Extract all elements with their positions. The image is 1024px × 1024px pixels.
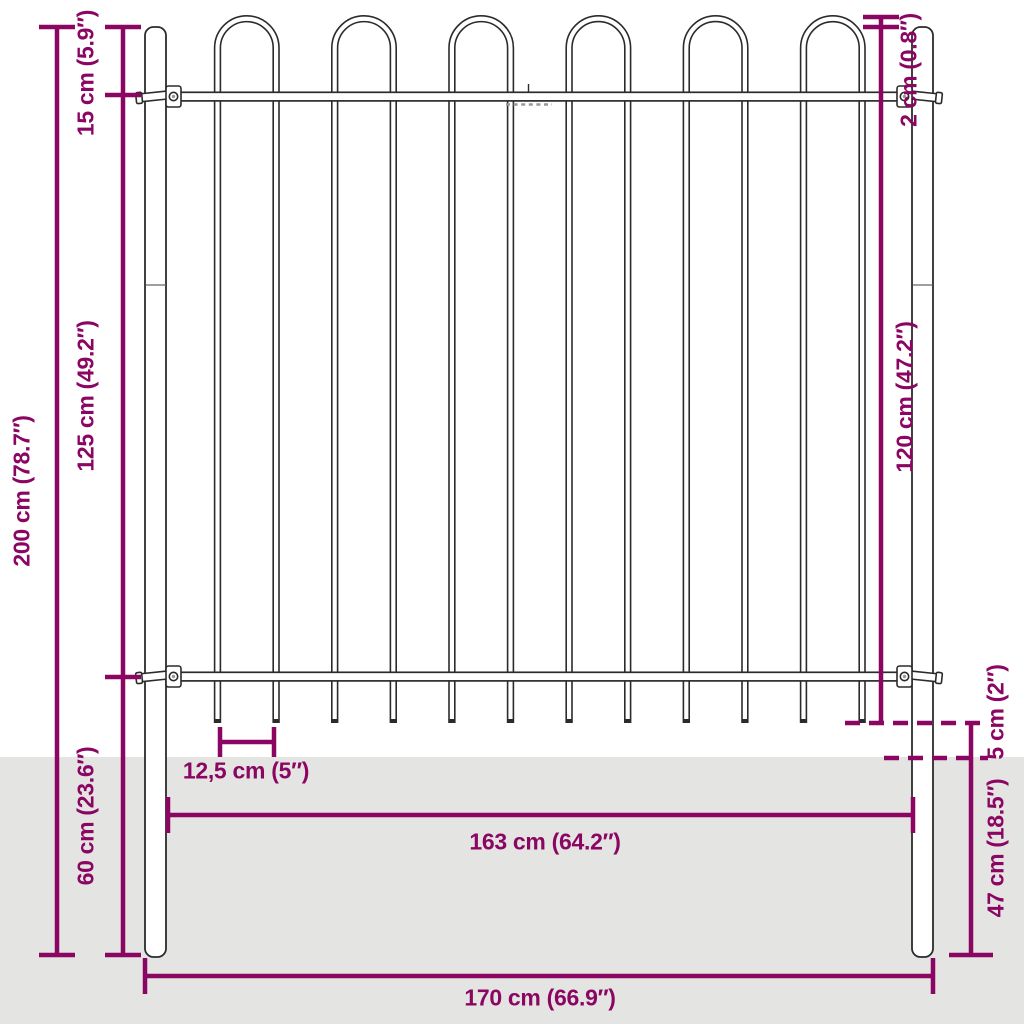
dim-post-underground-label: 47 cm (18.5″) — [985, 779, 1008, 918]
dim-panel-width-label: 163 cm (64.2″) — [469, 831, 620, 854]
fence-diagram-svg — [0, 0, 1024, 1024]
fence-hoop-bars — [218, 19, 863, 723]
top-rail — [166, 92, 912, 101]
dim-post-depth-left-label: 60 cm (23.6″) — [75, 747, 98, 886]
fence-dimension-diagram: 200 cm (78.7″) 15 cm (5.9″) 125 cm (49.2… — [0, 0, 1024, 1024]
dim-hoop-above-post-label: 2 cm (0.8″) — [898, 13, 921, 127]
dim-panel-height-label: 120 cm (47.2″) — [894, 321, 917, 472]
left-post — [145, 27, 166, 957]
dim-rail-spacing-label: 125 cm (49.2″) — [75, 320, 98, 471]
dim-line-bar-spacing — [220, 727, 274, 757]
fence-hoop-bars-core — [218, 19, 863, 719]
dim-total-height-label: 200 cm (78.7″) — [11, 415, 34, 566]
dim-bar-spacing-label: 12,5 cm (5″) — [183, 760, 309, 783]
bottom-rail — [166, 672, 912, 681]
dim-total-width-label: 170 cm (66.9″) — [464, 987, 615, 1010]
dim-top-offset-label: 15 cm (5.9″) — [75, 10, 98, 136]
dim-ground-gap-label: 5 cm (2″) — [985, 664, 1008, 759]
